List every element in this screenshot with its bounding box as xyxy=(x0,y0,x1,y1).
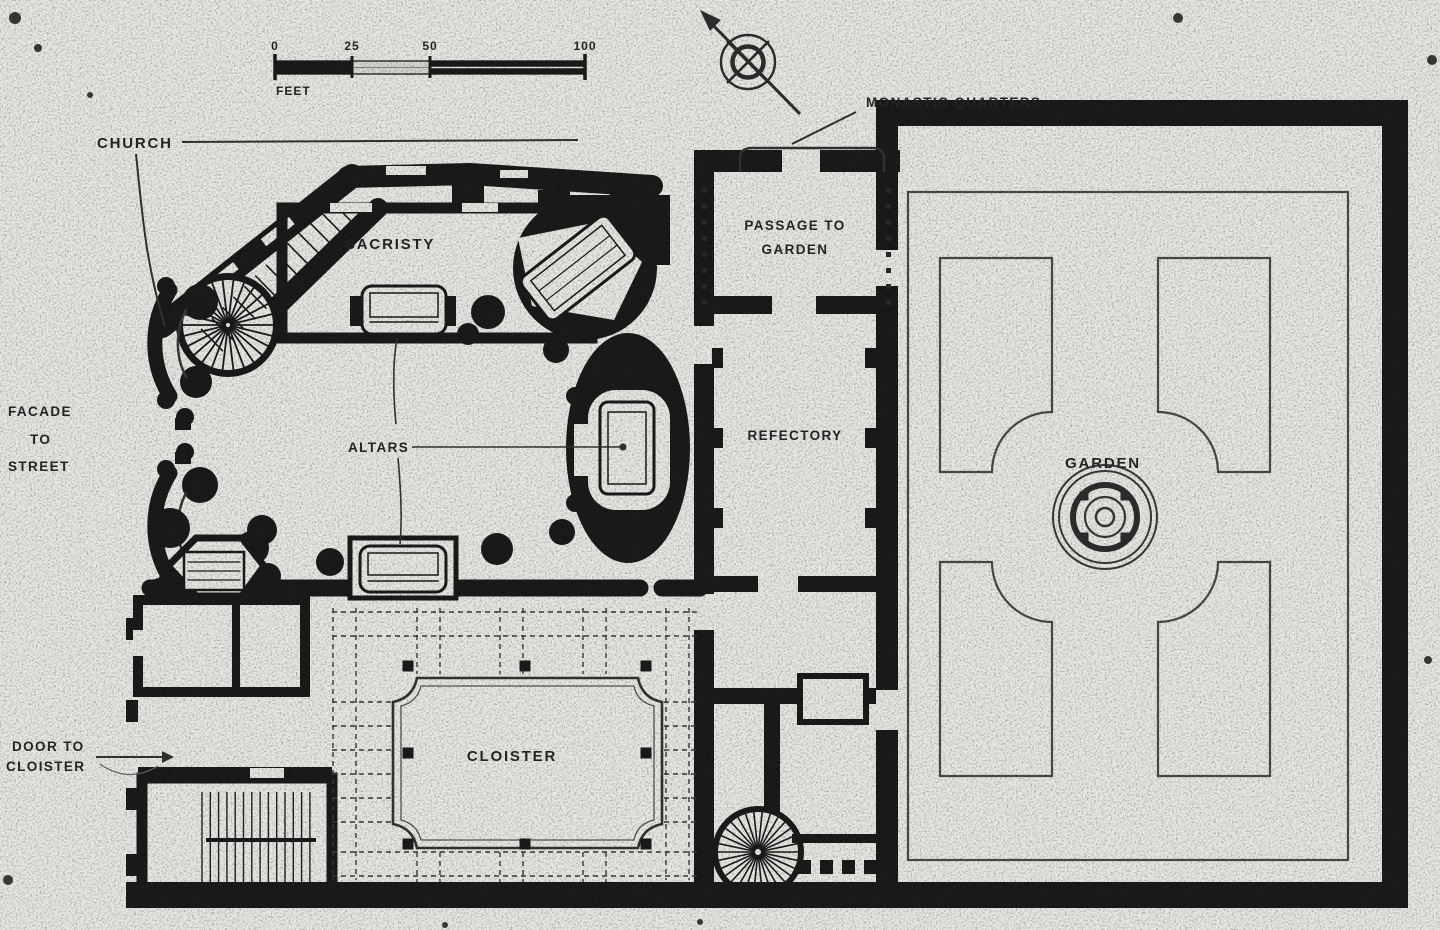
monastery-floor-plan: GARDEN xyxy=(0,0,1440,930)
paper-grain-overlay xyxy=(0,0,1440,930)
floor-plan-page: GARDEN xyxy=(0,0,1440,930)
